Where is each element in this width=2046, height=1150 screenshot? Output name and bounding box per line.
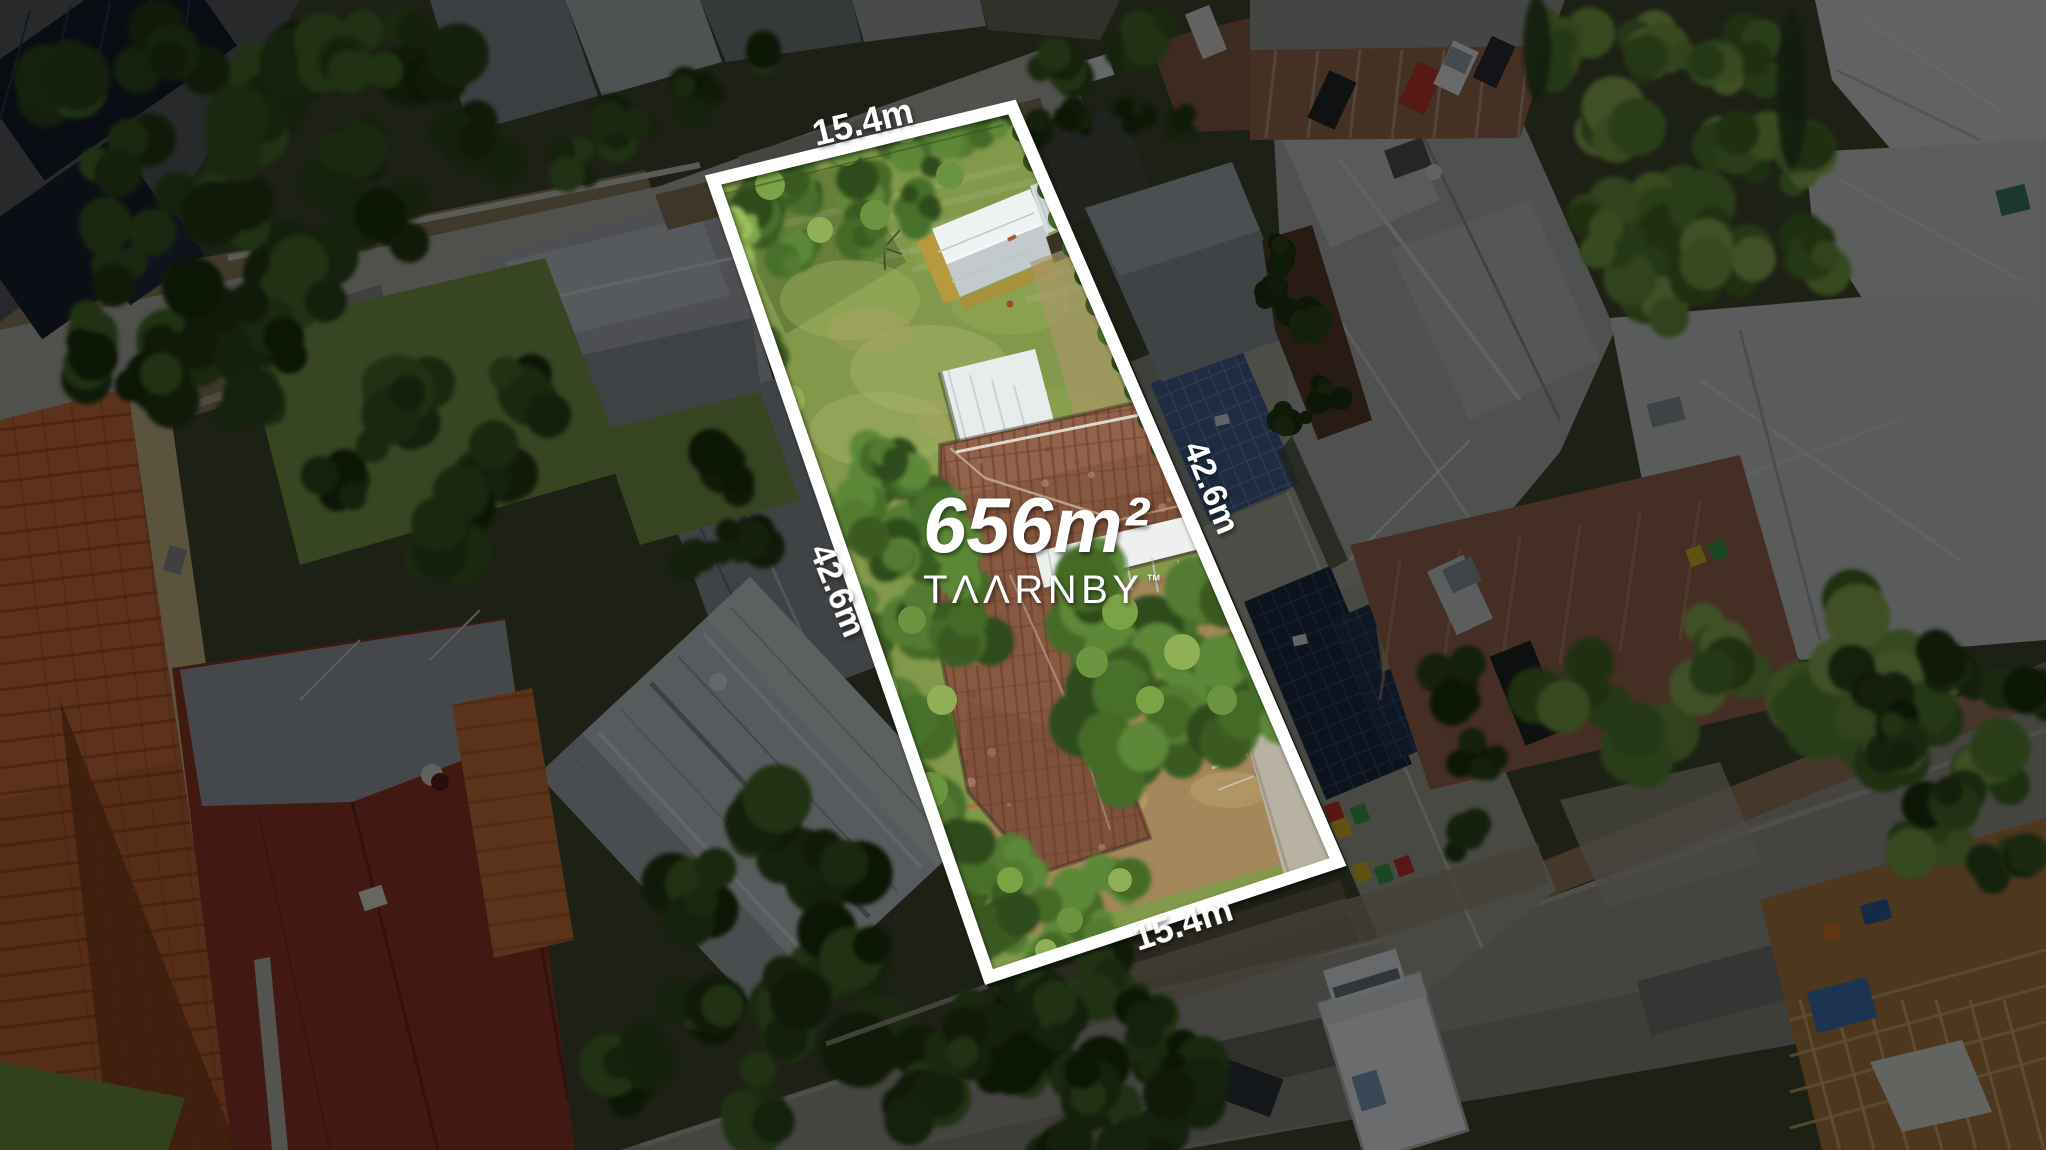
svg-text:656m²: 656m² (923, 481, 1150, 569)
svg-text:™: ™ (1146, 572, 1161, 589)
svg-text:TΛΛRNBY: TΛΛRNBY (923, 568, 1144, 612)
